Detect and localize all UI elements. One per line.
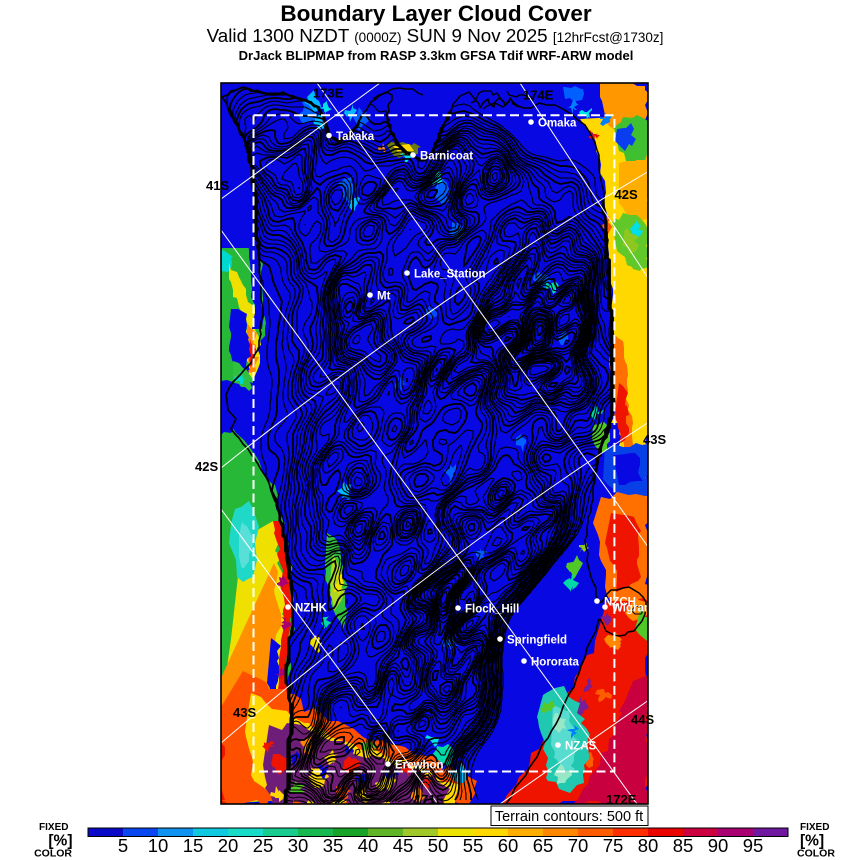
svg-text:25: 25 xyxy=(253,835,274,856)
svg-text:Flock_Hill: Flock_Hill xyxy=(465,604,519,616)
svg-text:30: 30 xyxy=(288,835,309,856)
svg-text:70: 70 xyxy=(568,835,589,856)
svg-text:50: 50 xyxy=(428,835,449,856)
svg-text:65: 65 xyxy=(533,835,554,856)
svg-text:5: 5 xyxy=(118,835,128,856)
svg-text:FIXED: FIXED xyxy=(39,822,68,833)
svg-text:80: 80 xyxy=(638,835,659,856)
svg-text:Takaka: Takaka xyxy=(336,131,375,143)
svg-text:COLOR: COLOR xyxy=(797,848,835,860)
svg-text:10: 10 xyxy=(148,835,169,856)
svg-text:Terrain contours: 500 ft: Terrain contours: 500 ft xyxy=(495,809,643,825)
svg-text:95: 95 xyxy=(743,835,764,856)
svg-text:43S: 43S xyxy=(233,705,256,720)
svg-text:COLOR: COLOR xyxy=(34,848,72,860)
svg-text:43S: 43S xyxy=(643,432,666,447)
svg-text:Barnicoat: Barnicoat xyxy=(420,151,473,163)
svg-text:45: 45 xyxy=(393,835,414,856)
svg-text:NZHK: NZHK xyxy=(295,603,328,615)
svg-text:15: 15 xyxy=(183,835,204,856)
svg-text:NZAS: NZAS xyxy=(565,741,597,753)
svg-text:Boundary Layer Cloud Cover: Boundary Layer Cloud Cover xyxy=(280,1,592,26)
svg-text:35: 35 xyxy=(323,835,344,856)
svg-text:75: 75 xyxy=(603,835,624,856)
svg-text:Lake_Station: Lake_Station xyxy=(414,269,486,281)
svg-text:174E: 174E xyxy=(523,88,554,103)
svg-text:DrJack BLIPMAP from RASP 3.3km: DrJack BLIPMAP from RASP 3.3km GFSA Tdif… xyxy=(239,48,634,63)
svg-text:173E: 173E xyxy=(313,86,344,101)
svg-text:Omaka: Omaka xyxy=(538,118,577,130)
svg-text:FIXED: FIXED xyxy=(800,822,829,833)
svg-text:90: 90 xyxy=(708,835,729,856)
svg-text:55: 55 xyxy=(463,835,484,856)
svg-text:Hororata: Hororata xyxy=(531,657,580,669)
svg-text:Mt: Mt xyxy=(377,291,391,303)
svg-text:Erewhon: Erewhon xyxy=(395,760,444,772)
svg-text:171E: 171E xyxy=(414,792,445,807)
svg-text:42S: 42S xyxy=(195,459,218,474)
svg-text:42S: 42S xyxy=(615,187,638,202)
svg-text:20: 20 xyxy=(218,835,239,856)
svg-text:40: 40 xyxy=(358,835,379,856)
svg-text:172E: 172E xyxy=(606,792,637,807)
svg-text:85: 85 xyxy=(673,835,694,856)
svg-text:44S: 44S xyxy=(631,712,654,727)
svg-text:41S: 41S xyxy=(206,178,229,193)
svg-text:60: 60 xyxy=(498,835,519,856)
svg-text:Springfield: Springfield xyxy=(507,635,567,647)
